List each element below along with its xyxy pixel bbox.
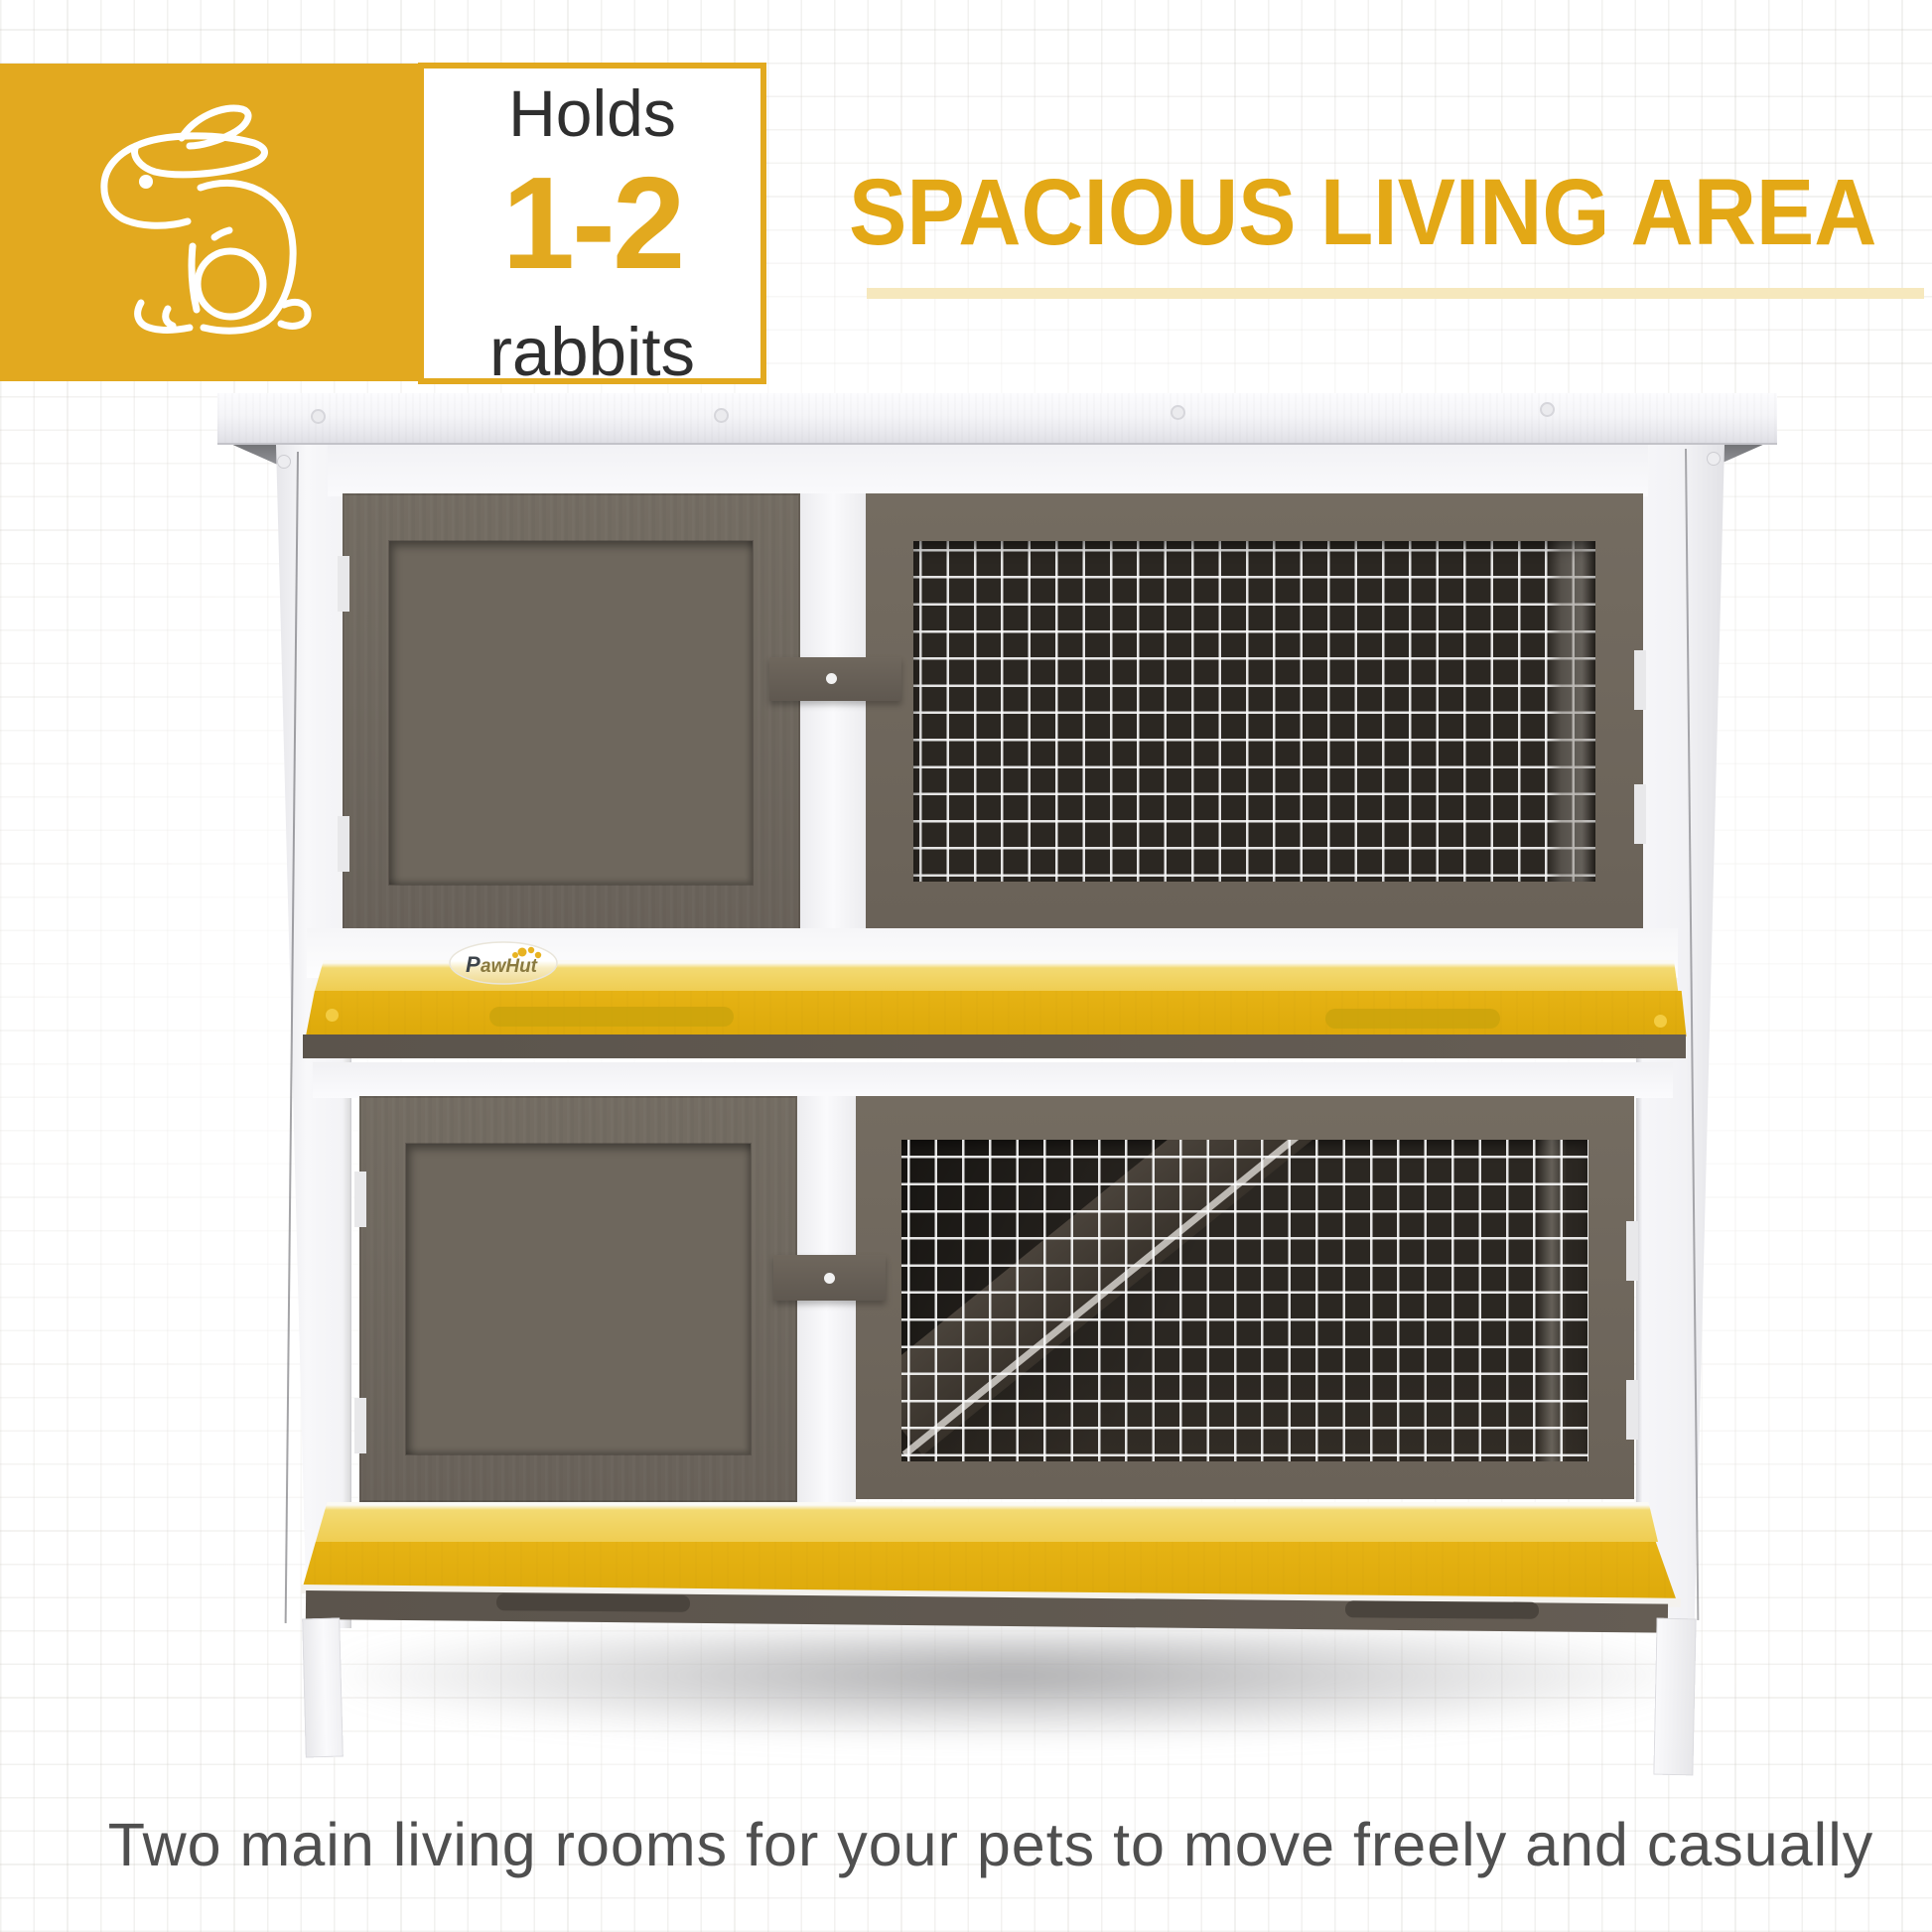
- svg-text:awHut: awHut: [481, 956, 538, 977]
- svg-text:P: P: [466, 952, 481, 977]
